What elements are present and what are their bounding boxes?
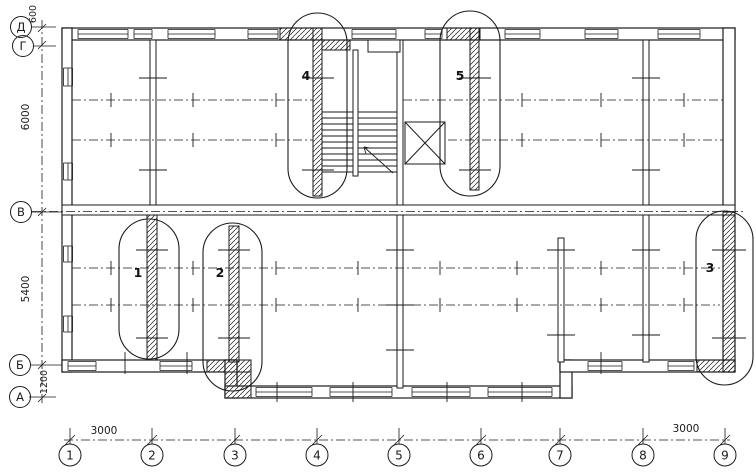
hatched-pier-4 xyxy=(280,28,313,40)
grid-axis-label-v: В xyxy=(17,205,25,219)
dimension-lines xyxy=(29,20,730,445)
callout-number-1: 1 xyxy=(134,265,143,280)
grid-axis-label-1: 1 xyxy=(66,449,74,463)
callout-number-5: 5 xyxy=(456,68,465,83)
dimension-3000-left: 3000 xyxy=(91,425,118,437)
dimension-leaders-left xyxy=(29,27,62,397)
grid-axis-label-4: 4 xyxy=(313,449,321,463)
staircase xyxy=(322,112,397,173)
hatched-pier-5 xyxy=(447,28,480,40)
wall-interior-b xyxy=(397,40,403,206)
grid-axes-bottom: 1 2 3 4 5 6 7 8 9 xyxy=(59,444,736,466)
hatched-corner-2a xyxy=(207,360,251,372)
wall-interior-e xyxy=(558,238,564,362)
stair-treads-left xyxy=(322,112,353,172)
grid-axis-label-8: 8 xyxy=(639,449,647,463)
wall-axis-v xyxy=(62,205,735,215)
wall-interior-c xyxy=(643,40,649,206)
grid-axis-label-g: Г xyxy=(19,39,26,53)
hatched-stub-4 xyxy=(322,40,350,50)
dimension-1200: 1200 xyxy=(39,370,50,394)
dimension-6000: 6000 xyxy=(20,104,32,131)
grid-axis-label-3: 3 xyxy=(231,449,239,463)
wall-interior-a xyxy=(150,40,156,206)
wall-top xyxy=(62,28,735,40)
callout-number-2: 2 xyxy=(216,265,225,280)
grid-axis-label-a: А xyxy=(16,390,24,404)
interior-walls xyxy=(62,40,735,388)
elevator-shaft xyxy=(405,122,445,164)
callout-ovals xyxy=(119,11,753,391)
grid-axis-label-2: 2 xyxy=(148,449,156,463)
grid-axis-label-9: 9 xyxy=(721,449,729,463)
hatched-corner-3 xyxy=(697,360,735,372)
hatched-wall-4 xyxy=(313,28,322,196)
hatched-wall-5 xyxy=(470,28,479,190)
hatched-wall-3 xyxy=(723,212,735,372)
door-opening xyxy=(404,207,424,215)
stair-treads-right xyxy=(358,112,397,172)
floor-plan-sheet: 1 2 3 4 5 1 2 3 4 5 6 7 8 xyxy=(0,0,756,476)
grid-axis-label-7: 7 xyxy=(556,449,564,463)
grid-axes-left: Д Г В Б А xyxy=(10,17,34,408)
floor-plan-drawing: 1 2 3 4 5 1 2 3 4 5 6 7 8 xyxy=(0,0,756,476)
hatched-wall-2 xyxy=(229,226,239,362)
grid-axis-label-b: Б xyxy=(16,358,24,372)
vestibule-closet xyxy=(368,40,400,52)
callout-number-3: 3 xyxy=(706,260,715,275)
dimension-3000-right: 3000 xyxy=(673,423,700,435)
wall-interior-d xyxy=(397,215,403,388)
grid-axis-label-6: 6 xyxy=(477,449,485,463)
wall-interior-f xyxy=(643,215,649,362)
dimension-600: 600 xyxy=(28,5,39,23)
hatched-corner-2b xyxy=(225,372,251,398)
callout-number-4: 4 xyxy=(302,68,311,83)
stair-center-wall xyxy=(353,50,358,176)
grid-axis-label-d: Д xyxy=(17,20,26,34)
grid-axis-label-5: 5 xyxy=(395,449,403,463)
dimension-5400: 5400 xyxy=(20,276,32,303)
